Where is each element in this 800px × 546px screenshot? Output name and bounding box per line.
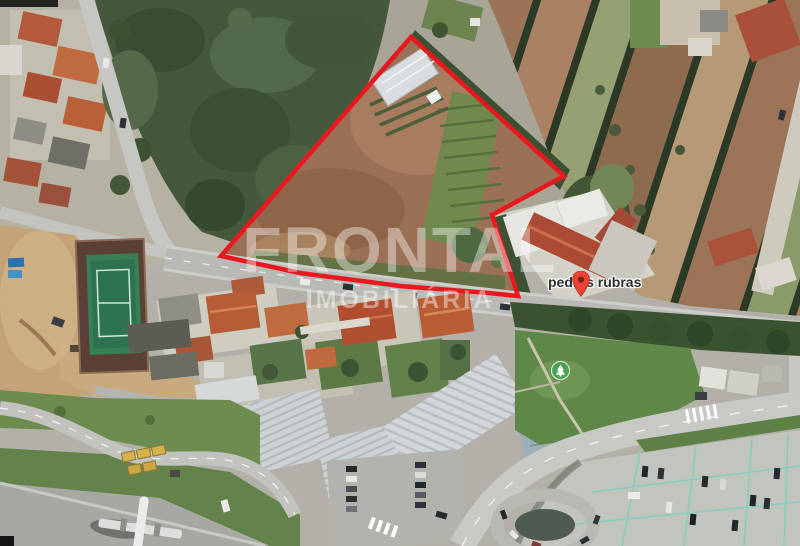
place-label: pedras rubras <box>548 274 641 290</box>
location-pin-icon[interactable] <box>572 271 590 297</box>
boundary-layer <box>0 0 800 546</box>
park-tree-icon[interactable] <box>551 361 570 380</box>
map-canvas[interactable]: pedras rubras FRONTAL IMOBILIÁRIA <box>0 0 800 546</box>
property-boundary-overlay <box>221 37 564 296</box>
